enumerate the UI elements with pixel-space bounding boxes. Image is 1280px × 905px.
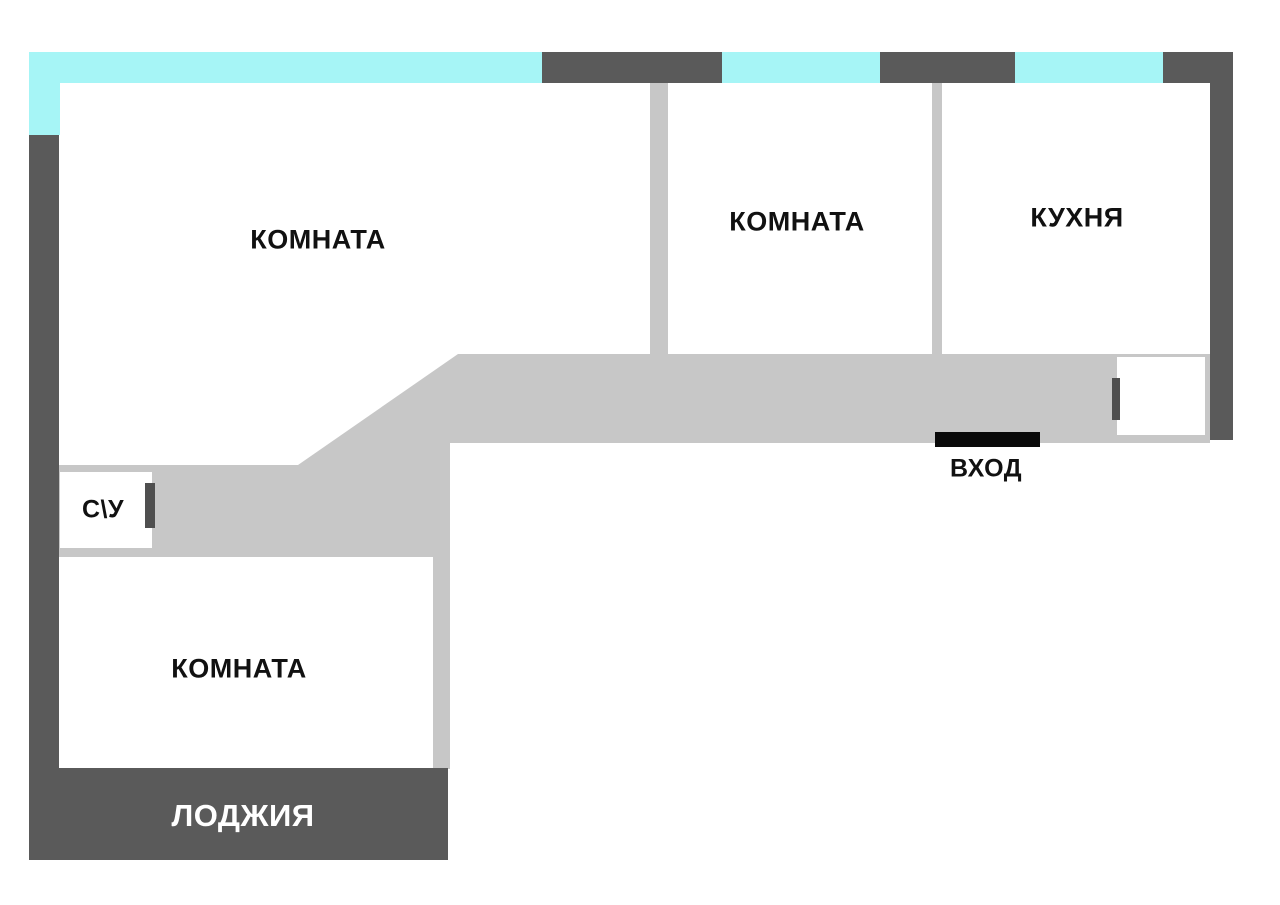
room-left-label: КОМНАТА	[250, 225, 385, 256]
window-top-middle-room	[722, 52, 880, 83]
kitchen-label: КУХНЯ	[1030, 203, 1123, 234]
entrance-label: ВХОД	[950, 455, 1022, 484]
wall-top-segment-1	[542, 52, 722, 83]
room-bottom-label: КОМНАТА	[171, 654, 306, 685]
closet-area	[1117, 357, 1205, 435]
wall-right	[1210, 83, 1233, 440]
entrance-door-bar	[935, 432, 1040, 447]
window-top-left	[29, 52, 542, 83]
bathroom-door-marker	[145, 483, 155, 528]
loggia-label: ЛОДЖИЯ	[171, 798, 314, 834]
divider-leftroom-middleroom	[650, 83, 668, 356]
wall-top-right-corner	[1163, 52, 1233, 83]
bathroom-label: С\У	[82, 496, 124, 525]
closet-door-marker	[1112, 378, 1120, 420]
corridor-polygon	[59, 354, 1210, 557]
wall-left	[29, 135, 59, 860]
window-left-side-stub	[29, 83, 60, 135]
window-kitchen	[1015, 52, 1163, 83]
divider-middleroom-kitchen	[932, 83, 942, 355]
divider-bottomroom-right	[433, 557, 450, 769]
floor-plan: КОМНАТА КОМНАТА КУХНЯ С\У КОМНАТА ВХОД Л…	[0, 0, 1280, 905]
room-middle-label: КОМНАТА	[729, 207, 864, 238]
wall-top-segment-2	[880, 52, 1015, 83]
